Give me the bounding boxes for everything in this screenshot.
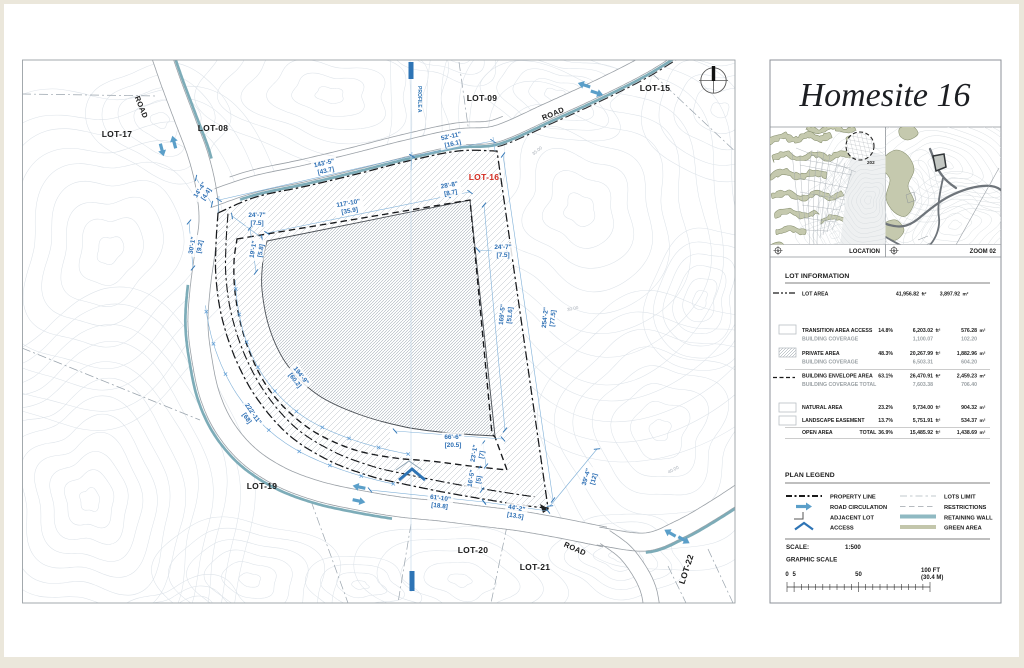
svg-text:RETAINING WALL: RETAINING WALL xyxy=(944,516,993,522)
svg-text:m²: m² xyxy=(980,374,986,380)
svg-text:LOT-09: LOT-09 xyxy=(467,93,498,103)
svg-text:66'-6": 66'-6" xyxy=(444,434,461,441)
svg-text:ft²: ft² xyxy=(936,328,941,334)
svg-text:LOT-21: LOT-21 xyxy=(520,562,551,572)
svg-text:ft²: ft² xyxy=(936,418,941,424)
svg-text:BUILDING COVERAGE: BUILDING COVERAGE xyxy=(802,382,859,388)
svg-text:PRIVATE AREA: PRIVATE AREA xyxy=(802,351,840,357)
svg-text:5,751.91: 5,751.91 xyxy=(913,418,933,424)
svg-text:LOT-08: LOT-08 xyxy=(198,123,229,133)
svg-text:TOTAL: TOTAL xyxy=(860,382,878,388)
svg-text:ft²: ft² xyxy=(936,374,941,380)
svg-text:604.20: 604.20 xyxy=(961,360,977,366)
svg-text:ADJACENT LOT: ADJACENT LOT xyxy=(830,516,874,522)
svg-text:ZOOM 02: ZOOM 02 xyxy=(970,249,997,255)
svg-text:m²: m² xyxy=(980,418,986,424)
svg-text:m²: m² xyxy=(980,328,986,334)
svg-text:202: 202 xyxy=(867,160,875,165)
svg-text:m²: m² xyxy=(980,430,986,436)
svg-text:26,470.91: 26,470.91 xyxy=(910,374,933,380)
svg-text:OPEN AREA: OPEN AREA xyxy=(802,430,833,436)
svg-text:24'-7": 24'-7" xyxy=(494,244,511,251)
svg-text:1,438.69: 1,438.69 xyxy=(957,430,977,436)
svg-text:LOTS LIMIT: LOTS LIMIT xyxy=(944,495,976,501)
svg-text:ft²: ft² xyxy=(936,351,941,357)
svg-text:7,603.38: 7,603.38 xyxy=(913,382,933,388)
svg-text:24'-7": 24'-7" xyxy=(248,212,265,219)
svg-text:[20.5]: [20.5] xyxy=(445,442,462,449)
svg-text:50: 50 xyxy=(855,572,862,578)
svg-text:534.37: 534.37 xyxy=(961,418,977,424)
svg-text:706.40: 706.40 xyxy=(961,382,977,388)
svg-text:15,485.92: 15,485.92 xyxy=(910,430,933,436)
svg-text:100 FT: 100 FT xyxy=(921,568,940,574)
svg-text:ACCESS: ACCESS xyxy=(830,526,854,532)
svg-text:m²: m² xyxy=(980,405,986,411)
svg-text:NATURAL AREA: NATURAL AREA xyxy=(802,405,843,411)
svg-text:1,100.07: 1,100.07 xyxy=(913,337,933,343)
svg-text:LOT-15: LOT-15 xyxy=(640,83,671,93)
svg-text:41,956.82: 41,956.82 xyxy=(896,292,919,298)
svg-text:9,734.00: 9,734.00 xyxy=(913,405,933,411)
svg-text:BUILDING ENVELOPE AREA: BUILDING ENVELOPE AREA xyxy=(802,374,873,380)
svg-text:36.9%: 36.9% xyxy=(878,430,893,436)
svg-text:48.3%: 48.3% xyxy=(878,351,893,357)
svg-text:23.2%: 23.2% xyxy=(878,405,893,411)
svg-text:LOCATION: LOCATION xyxy=(849,249,880,255)
svg-text:6,503.31: 6,503.31 xyxy=(913,360,933,366)
svg-text:13.7%: 13.7% xyxy=(878,418,893,424)
svg-text:1:500: 1:500 xyxy=(845,544,861,551)
svg-text:[5]: [5] xyxy=(475,475,483,484)
svg-text:BUILDING COVERAGE: BUILDING COVERAGE xyxy=(802,337,859,343)
svg-text:1,882.96: 1,882.96 xyxy=(957,351,977,357)
svg-text:576.28: 576.28 xyxy=(961,328,977,334)
svg-text:PLAN LEGEND: PLAN LEGEND xyxy=(785,472,835,479)
svg-text:102.20: 102.20 xyxy=(961,337,977,343)
svg-text:ft²: ft² xyxy=(922,292,927,298)
svg-text:ROAD CIRCULATION: ROAD CIRCULATION xyxy=(830,505,887,511)
svg-text:TOTAL: TOTAL xyxy=(860,430,878,436)
svg-text:m²: m² xyxy=(980,351,986,357)
svg-text:20,267.99: 20,267.99 xyxy=(910,351,933,357)
svg-text:LOT AREA: LOT AREA xyxy=(802,292,829,298)
svg-text:[7.5]: [7.5] xyxy=(250,220,263,227)
svg-text:GREEN AREA: GREEN AREA xyxy=(944,526,982,532)
svg-text:ft²: ft² xyxy=(936,430,941,436)
svg-text:3,897.92: 3,897.92 xyxy=(940,292,960,298)
svg-text:LOT-17: LOT-17 xyxy=(102,129,133,139)
svg-text:2,459.23: 2,459.23 xyxy=(957,374,977,380)
svg-text:BUILDING COVERAGE: BUILDING COVERAGE xyxy=(802,360,859,366)
svg-text:[7]: [7] xyxy=(478,450,486,459)
svg-text:PROPERTY LINE: PROPERTY LINE xyxy=(830,495,876,501)
svg-text:LANDSCAPE EASEMENT: LANDSCAPE EASEMENT xyxy=(802,418,865,424)
svg-text:LOT-16: LOT-16 xyxy=(469,172,500,182)
svg-text:63.1%: 63.1% xyxy=(878,374,893,380)
svg-text:(30.4 M): (30.4 M) xyxy=(921,575,943,581)
svg-text:PROFILE A: PROFILE A xyxy=(416,86,422,113)
svg-text:SCALE:: SCALE: xyxy=(786,544,809,551)
svg-text:LOT-20: LOT-20 xyxy=(458,545,489,555)
svg-text:14.8%: 14.8% xyxy=(878,328,893,334)
svg-text:6,203.02: 6,203.02 xyxy=(913,328,933,334)
svg-text:LOT-19: LOT-19 xyxy=(247,481,278,491)
svg-text:904.32: 904.32 xyxy=(961,405,977,411)
svg-text:m²: m² xyxy=(963,292,969,298)
svg-text:Homesite 16: Homesite 16 xyxy=(799,77,971,114)
svg-text:GRAPHIC SCALE: GRAPHIC SCALE xyxy=(786,557,837,564)
svg-text:RESTRICTIONS: RESTRICTIONS xyxy=(944,505,987,511)
svg-text:TRANSITION AREA ACCESS: TRANSITION AREA ACCESS xyxy=(802,328,873,334)
svg-text:LOT INFORMATION: LOT INFORMATION xyxy=(785,273,849,280)
svg-text:[7.5]: [7.5] xyxy=(496,252,509,259)
svg-text:ft²: ft² xyxy=(936,405,941,411)
